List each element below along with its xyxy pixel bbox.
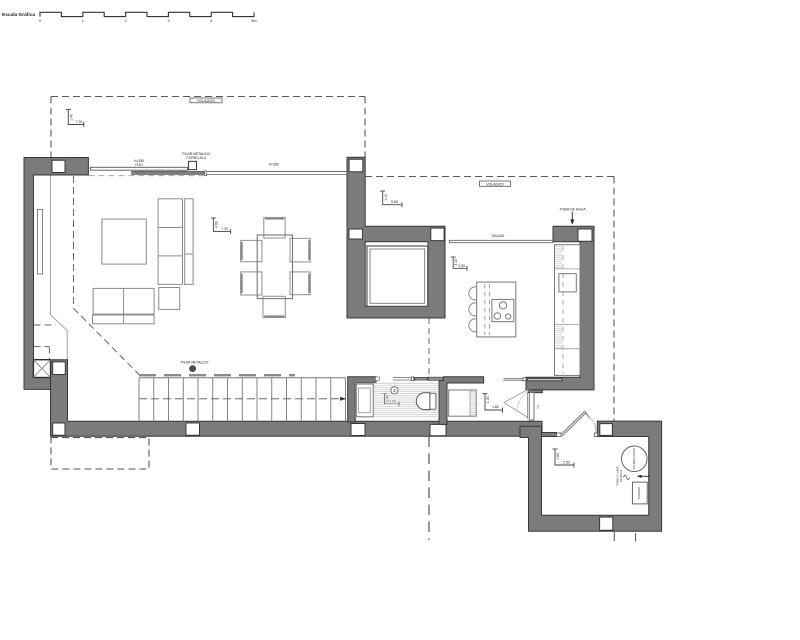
svg-text:1.00: 1.00 <box>486 396 490 403</box>
svg-text:FORRO ALU: FORRO ALU <box>187 156 207 160</box>
svg-text:RF: RF <box>536 404 540 408</box>
svg-text:5.80: 5.80 <box>391 200 398 204</box>
svg-text:4.60: 4.60 <box>215 221 219 228</box>
svg-text:PILAR METALICO: PILAR METALICO <box>181 361 209 365</box>
svg-text:7.30: 7.30 <box>76 120 83 124</box>
svg-text:Escala Gráfica: Escala Gráfica <box>2 12 35 18</box>
svg-text:5m: 5m <box>251 19 256 23</box>
svg-text:TOMA DE AGUA: TOMA DE AGUA <box>559 208 586 212</box>
svg-text:DE AGUA: DE AGUA <box>619 470 623 483</box>
svg-text:200x245: 200x245 <box>492 234 505 238</box>
svg-text:3: 3 <box>167 19 169 23</box>
svg-text:VOLADIZO: VOLADIZO <box>197 99 215 103</box>
svg-text:FIJO: FIJO <box>135 163 143 167</box>
svg-text:1.80: 1.80 <box>492 405 499 409</box>
svg-text:4: 4 <box>210 19 212 23</box>
svg-text:1.80: 1.80 <box>556 453 560 460</box>
svg-text:2.50: 2.50 <box>563 460 570 464</box>
svg-text:VOLADIZO: VOLADIZO <box>486 182 504 186</box>
svg-text:0: 0 <box>39 19 41 23</box>
svg-text:ACUMULADOR: ACUMULADOR <box>632 448 636 470</box>
svg-text:2: 2 <box>125 19 127 23</box>
svg-text:3.30: 3.30 <box>458 264 465 268</box>
svg-text:3: 3 <box>393 388 396 393</box>
svg-text:H=350: H=350 <box>269 162 279 166</box>
svg-text:1: 1 <box>82 19 84 23</box>
svg-text:CUADRO: CUADRO <box>637 486 641 499</box>
svg-text:7.30: 7.30 <box>221 227 228 231</box>
svg-text:1.10: 1.10 <box>384 194 388 201</box>
svg-text:1.40: 1.40 <box>70 114 74 121</box>
